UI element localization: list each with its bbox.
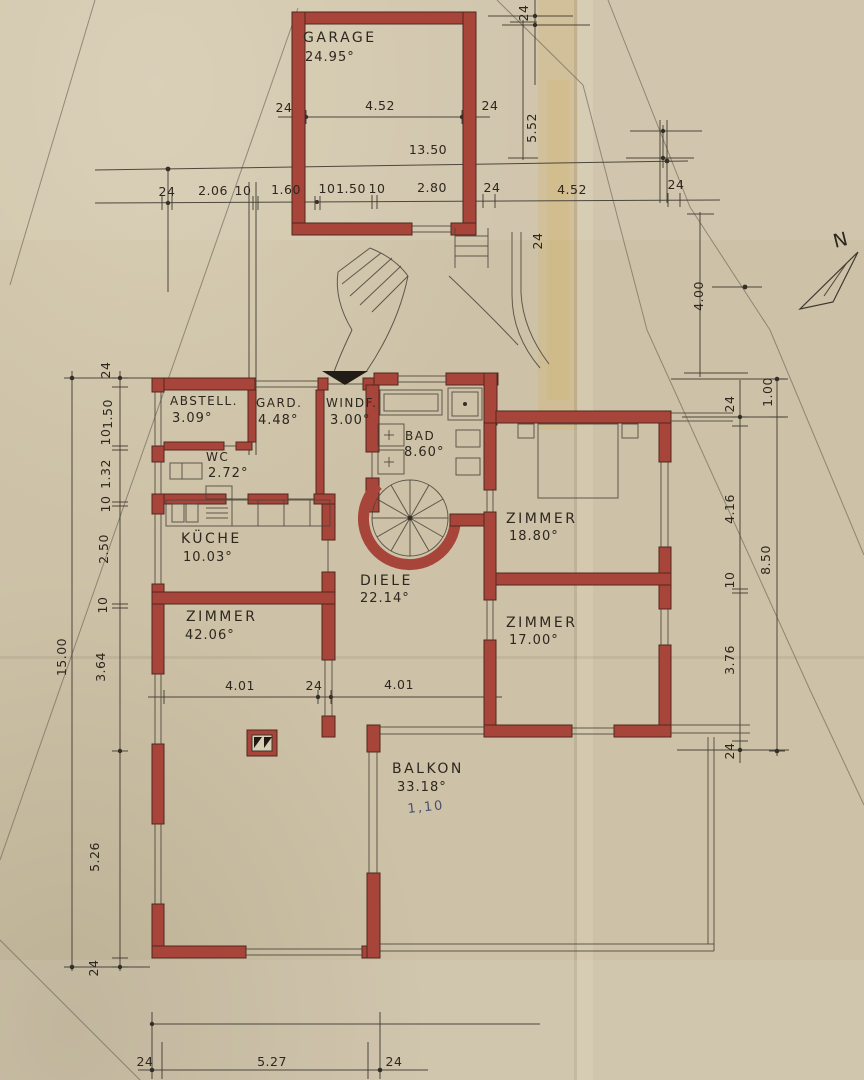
dim-label: 24 bbox=[530, 233, 545, 250]
dim-label: 5.26 bbox=[87, 842, 102, 872]
dim-label: 5.27 bbox=[257, 1054, 287, 1069]
dim-label: 4.00 bbox=[691, 281, 706, 311]
dim-label: 10 bbox=[369, 181, 386, 196]
room-area-wc: 2.72° bbox=[208, 466, 248, 481]
dim-label: 13.50 bbox=[409, 142, 447, 157]
floor-plan-drawing: N GARAGE 24.95° ABSTELL. 3.09° GARD. 4.4… bbox=[0, 0, 864, 1080]
dim-label: 3.64 bbox=[93, 652, 108, 682]
dim-label: 15.00 bbox=[54, 638, 69, 676]
dim-label: 24 bbox=[482, 98, 499, 113]
room-area-zimmer-links: 42.06° bbox=[185, 628, 235, 643]
dim-label: 24 bbox=[668, 177, 685, 192]
dim-label: 8.50 bbox=[758, 545, 773, 575]
room-area-balkon: 33.18° bbox=[397, 780, 447, 795]
room-name-wc: WC bbox=[206, 450, 229, 464]
dim-label: 1.50 bbox=[100, 399, 115, 429]
dim-label: 24 bbox=[484, 180, 501, 195]
chimney bbox=[247, 730, 277, 756]
room-name-zimmer-links: ZIMMER bbox=[186, 609, 257, 625]
room-area-zimmer-no: 18.80° bbox=[509, 529, 559, 544]
dim-label: 24 bbox=[98, 362, 113, 379]
dim-label: 1.60 bbox=[271, 182, 301, 197]
dim-label: 4.16 bbox=[722, 494, 737, 524]
paper-tint-top bbox=[0, 0, 864, 240]
floor-plan-scan: N GARAGE 24.95° ABSTELL. 3.09° GARD. 4.4… bbox=[0, 0, 864, 1080]
room-name-garage: GARAGE bbox=[303, 30, 377, 46]
dim-label: 24 bbox=[306, 678, 323, 693]
dim-label: 10 bbox=[722, 572, 737, 589]
room-name-kueche: KÜCHE bbox=[181, 529, 242, 547]
dim-label: 24 bbox=[722, 396, 737, 413]
room-name-gard: GARD. bbox=[256, 396, 302, 410]
dim-label: 2.06 bbox=[198, 183, 228, 198]
room-area-garage: 24.95° bbox=[305, 50, 355, 65]
room-area-diele: 22.14° bbox=[360, 591, 410, 606]
dim-label: 4.52 bbox=[557, 182, 587, 197]
dim-label: 4.52 bbox=[365, 98, 395, 113]
room-area-bad: 8.60° bbox=[404, 445, 444, 460]
room-name-zimmer-so: ZIMMER bbox=[506, 615, 577, 631]
dim-label: 24 bbox=[159, 184, 176, 199]
dim-label: 1.50 bbox=[336, 181, 366, 196]
room-name-zimmer-no: ZIMMER bbox=[506, 511, 577, 527]
room-area-zimmer-so: 17.00° bbox=[509, 633, 559, 648]
room-name-diele: DIELE bbox=[360, 573, 413, 589]
room-area-windf: 3.00° bbox=[330, 413, 370, 428]
dim-label: 24 bbox=[722, 743, 737, 760]
room-area-gard: 4.48° bbox=[258, 413, 298, 428]
dim-label: 4.01 bbox=[384, 677, 414, 692]
dim-label: 10 bbox=[98, 496, 113, 513]
room-area-kueche: 10.03° bbox=[183, 550, 233, 565]
dim-label: 1.00 bbox=[760, 377, 775, 407]
room-name-bad: BAD bbox=[405, 429, 435, 443]
dim-label: 5.52 bbox=[524, 113, 539, 143]
dim-label: 24 bbox=[516, 5, 531, 22]
room-area-abstell: 3.09° bbox=[172, 411, 212, 426]
dim-label: 10 bbox=[98, 429, 113, 446]
fold-crease-vertical bbox=[574, 0, 577, 1080]
room-name-abstell: ABSTELL. bbox=[170, 394, 238, 408]
room-name-balkon: BALKON bbox=[392, 761, 464, 777]
dim-label: 10 bbox=[95, 597, 110, 614]
dim-label: 1.32 bbox=[98, 459, 113, 489]
dim-label: 24 bbox=[86, 960, 101, 977]
dim-label: 2.80 bbox=[417, 180, 447, 195]
dim-label: 24 bbox=[386, 1054, 403, 1069]
room-name-windf: WINDF. bbox=[326, 396, 377, 410]
paper-background bbox=[0, 0, 864, 1080]
dim-label: 10 bbox=[319, 181, 336, 196]
dim-label: 24 bbox=[276, 100, 293, 115]
dim-label: 3.76 bbox=[722, 645, 737, 675]
dim-label: 10 bbox=[235, 183, 252, 198]
dim-label: 24 bbox=[137, 1054, 154, 1069]
dim-label: 2.50 bbox=[96, 534, 111, 564]
dim-label: 4.01 bbox=[225, 678, 255, 693]
